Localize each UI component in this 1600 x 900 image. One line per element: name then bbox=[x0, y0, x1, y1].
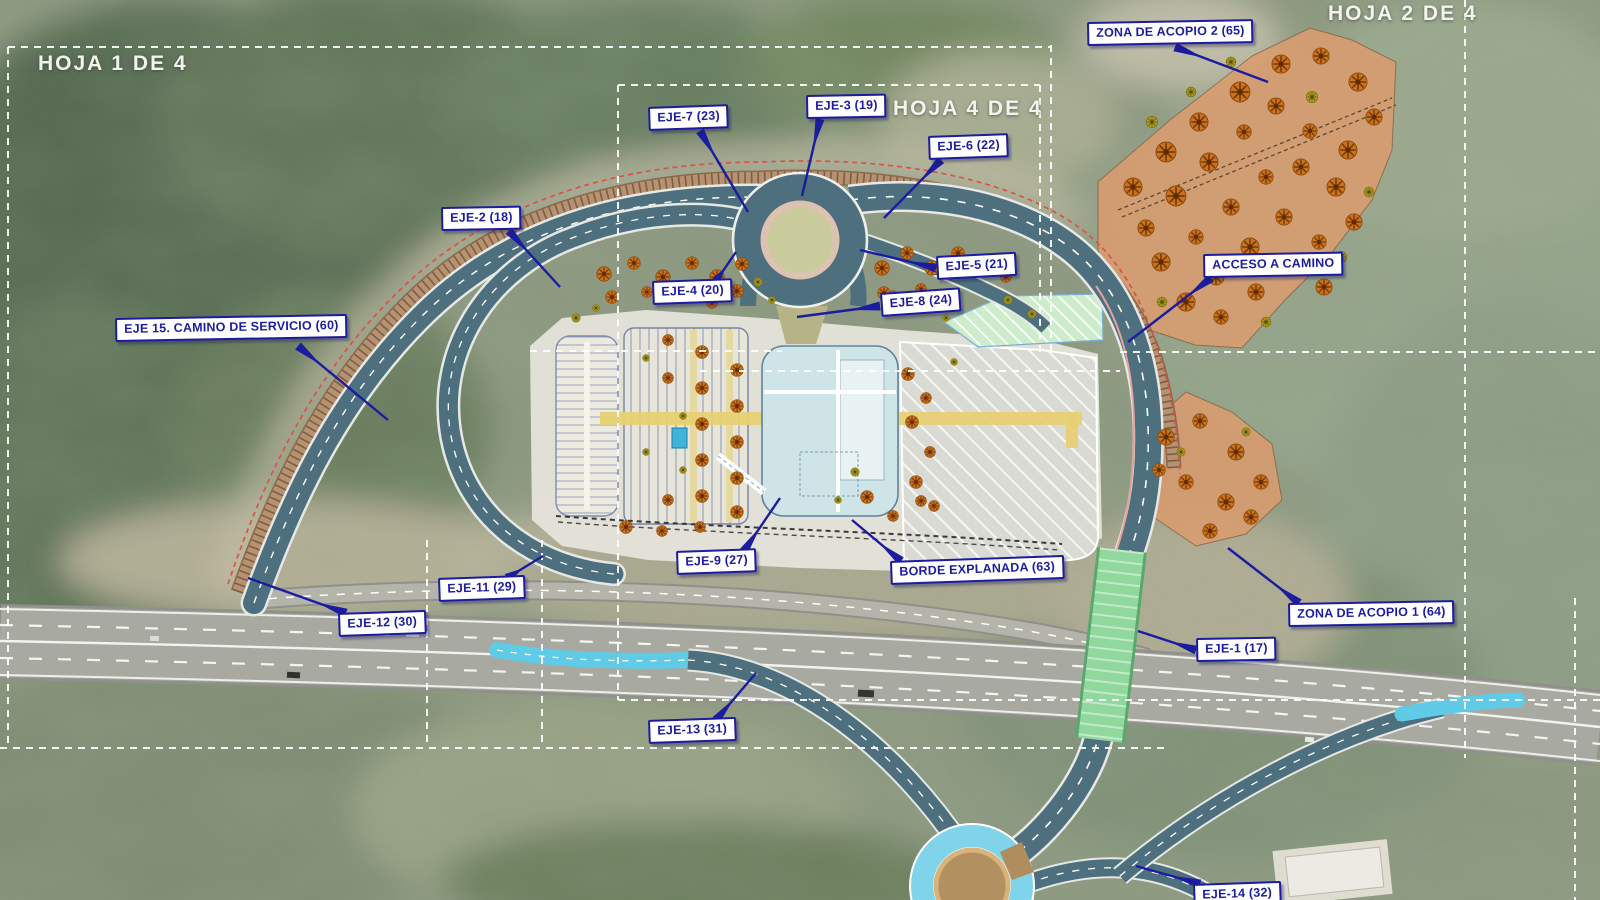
sheet-title-hoja-2: HOJA 2 DE 4 bbox=[1328, 2, 1478, 26]
north-roundabout bbox=[733, 173, 867, 307]
callout-eje-9: EJE-9 (27) bbox=[676, 548, 757, 574]
construction-plan-canvas: HOJA 1 DE 4HOJA 2 DE 4HOJA 4 DE 4 ZONA D… bbox=[0, 0, 1600, 900]
callout-eje-14: EJE-14 (32) bbox=[1193, 881, 1281, 900]
callout-eje-12: EJE-12 (30) bbox=[338, 610, 426, 637]
pool-feature bbox=[672, 428, 687, 448]
callout-eje-6: EJE-6 (22) bbox=[928, 133, 1009, 159]
callout-eje-2: EJE-2 (18) bbox=[441, 206, 522, 231]
callout-eje-5: EJE-5 (21) bbox=[936, 252, 1018, 280]
sheet-title-hoja-1: HOJA 1 DE 4 bbox=[38, 52, 188, 76]
callout-zona-acopio-1: ZONA DE ACOPIO 1 (64) bbox=[1288, 600, 1455, 627]
site-plan-drawing bbox=[0, 0, 1600, 900]
sheet-title-hoja-4: HOJA 4 DE 4 bbox=[893, 97, 1043, 121]
callout-eje-4: EJE-4 (20) bbox=[652, 278, 733, 304]
callout-eje-7: EJE-7 (23) bbox=[648, 104, 729, 130]
callout-eje-13: EJE-13 (31) bbox=[648, 717, 736, 744]
callout-eje-3: EJE-3 (19) bbox=[806, 94, 887, 119]
bridge-eje-1 bbox=[1100, 550, 1122, 740]
callout-eje-1: EJE-1 (17) bbox=[1196, 637, 1277, 662]
callout-zona-acopio-2: ZONA DE ACOPIO 2 (65) bbox=[1087, 19, 1254, 46]
callout-eje-11: EJE-11 (29) bbox=[438, 575, 526, 602]
callout-acceso-camino: ACCESO A CAMINO bbox=[1203, 252, 1344, 278]
callout-eje-15: EJE 15. CAMINO DE SERVICIO (60) bbox=[115, 314, 348, 342]
